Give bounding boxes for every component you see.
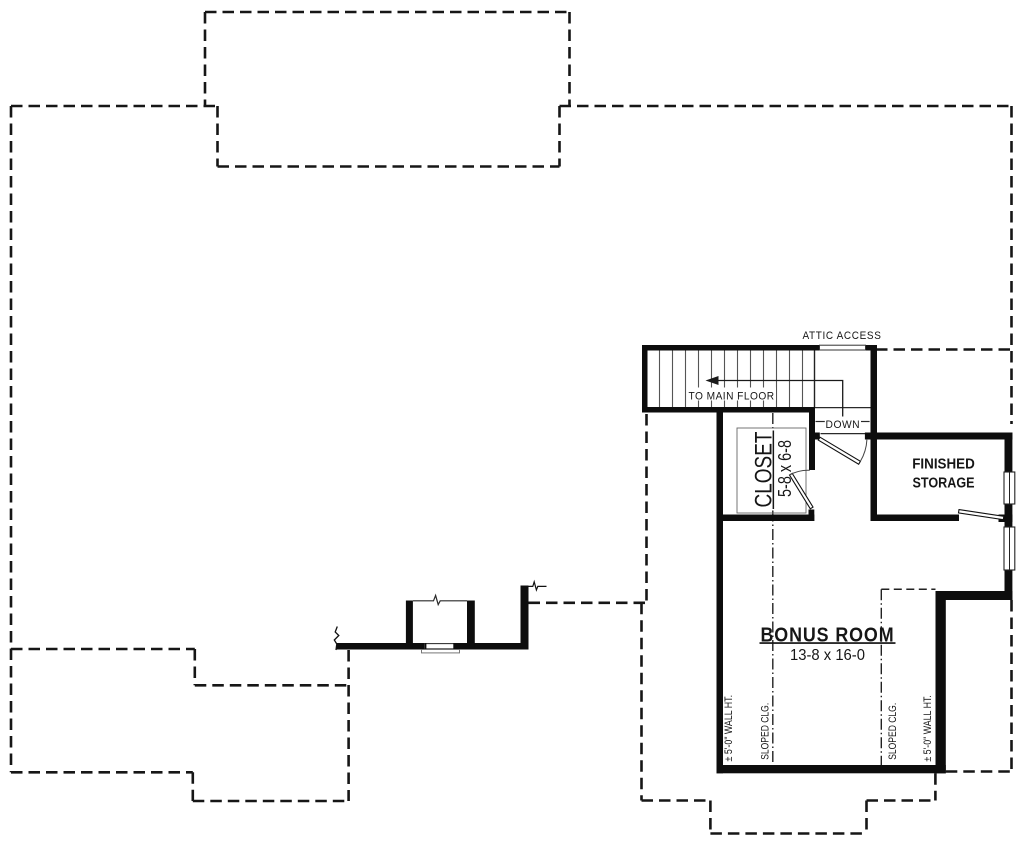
svg-text:13-8 x 16-0: 13-8 x 16-0 xyxy=(790,647,865,664)
svg-text:SLOPED CLG.: SLOPED CLG. xyxy=(887,703,899,760)
svg-text:5-8 x 6-8: 5-8 x 6-8 xyxy=(774,440,795,497)
svg-text:SLOPED CLG.: SLOPED CLG. xyxy=(759,703,771,760)
svg-text:DOWN: DOWN xyxy=(826,419,861,431)
svg-text:FINISHED: FINISHED xyxy=(912,455,975,472)
svg-text:± 5'-0" WALL HT.: ± 5'-0" WALL HT. xyxy=(723,695,735,762)
svg-text:TO MAIN FLOOR: TO MAIN FLOOR xyxy=(689,391,775,403)
svg-text:± 5'-0" WALL HT.: ± 5'-0" WALL HT. xyxy=(922,695,934,762)
svg-text:ATTIC ACCESS: ATTIC ACCESS xyxy=(803,330,882,342)
svg-text:STORAGE: STORAGE xyxy=(913,475,975,492)
